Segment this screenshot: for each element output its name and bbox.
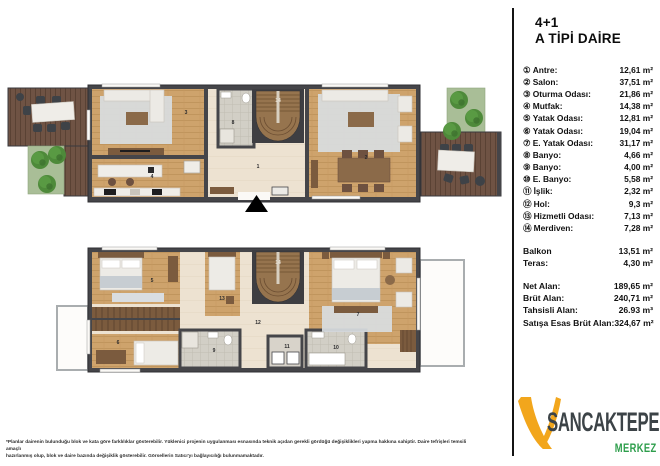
- legend-row: ⑩E. Banyo:5,58 m²: [523, 173, 653, 185]
- legend-number: ④: [523, 100, 531, 112]
- disclaimer-line2: hazırlanmış olup, blok ve daire bazında …: [6, 453, 468, 460]
- satis-alan-value: 324,67 m²: [614, 317, 653, 329]
- legend-value: 19,04 m²: [619, 125, 653, 137]
- room-label: 10: [333, 345, 339, 351]
- tree-icon: [31, 151, 49, 169]
- legend-number: ⑬: [523, 210, 532, 222]
- page-title: 4+1 A TİPİ DAİRE: [535, 15, 660, 47]
- legend-value: 31,17 m²: [619, 137, 653, 149]
- extras-block: Balkon 13,51 m² Teras: 4,30 m²: [523, 245, 653, 270]
- room-label: 8: [232, 120, 235, 126]
- disclaimer-footnote: *Planlar dairenin bulunduğu blok ve kata…: [6, 439, 468, 461]
- tahsisli-alan-label: Tahsisli Alan:: [523, 304, 578, 316]
- legend-label: E. Banyo:: [533, 173, 572, 185]
- brut-alan-row: Brüt Alan: 240,71 m²: [523, 292, 653, 304]
- teras-value: 4,30 m²: [623, 257, 653, 269]
- legend-label: Banyo:: [533, 149, 561, 161]
- logo-name: SANCAKTEPE: [547, 407, 659, 438]
- legend-value: 12,61 m²: [619, 64, 653, 76]
- legend-value: 4,00 m²: [624, 161, 653, 173]
- legend-value: 5,58 m²: [624, 173, 653, 185]
- apartment-name: A TİPİ DAİRE: [535, 31, 660, 47]
- room-label: 7: [357, 312, 360, 318]
- right-terrace-deck: [421, 88, 501, 196]
- tree-icon: [450, 91, 468, 109]
- legend-number: ②: [523, 76, 531, 88]
- tree-icon: [443, 122, 461, 140]
- legend-row: ②Salon:37,51 m²: [523, 76, 653, 88]
- legend-label: Mutfak:: [533, 100, 563, 112]
- legend-value: 9,3 m²: [629, 198, 653, 210]
- legend-label: Hol:: [534, 198, 550, 210]
- first-floor-plan: 5 6 13 14 7 12 9 11 10: [57, 247, 464, 372]
- legend-row: ⑪İşlik:2,32 m²: [523, 185, 653, 197]
- legend-value: 2,32 m²: [624, 185, 653, 197]
- room-label: 11: [284, 344, 290, 350]
- legend-label: E. Yatak Odası:: [533, 137, 593, 149]
- legend-row: ⑧Banyo:4,66 m²: [523, 149, 653, 161]
- legend-number: ⑭: [523, 222, 532, 234]
- legend-value: 7,13 m²: [624, 210, 653, 222]
- brand-logo: SANCAKTEPE MERKEZ: [516, 391, 658, 459]
- tahsisli-alan-value: 26.93 m³: [619, 304, 653, 316]
- balkon-value: 13,51 m²: [619, 245, 653, 257]
- legend-number: ⑪: [523, 185, 532, 197]
- legend-label: Antre:: [533, 64, 558, 76]
- legend-list: ①Antre:12,61 m²②Salon:37,51 m²③Oturma Od…: [523, 64, 653, 234]
- legend-number: ⑩: [523, 173, 531, 185]
- balcony-left: [57, 306, 88, 370]
- legend-number: ⑧: [523, 149, 531, 161]
- left-terrace-deck: [8, 88, 92, 196]
- legend-label: Oturma Odası:: [533, 88, 591, 100]
- room-label: 14: [275, 98, 281, 104]
- staircase: [252, 250, 304, 304]
- room-label: 9: [213, 348, 216, 354]
- brochure-page: 3 4 1 2 8 14: [0, 0, 660, 466]
- satis-alan-label: Satışa Esas Brüt Alan:: [523, 317, 614, 329]
- room-label: 14: [275, 260, 281, 266]
- legend-number: ⑦: [523, 137, 531, 149]
- room-label: 2: [365, 155, 368, 161]
- legend-row: ⑬Hizmetli Odası:7,13 m²: [523, 210, 653, 222]
- legend-row: ⑨Banyo:4,00 m²: [523, 161, 653, 173]
- legend-value: 4,66 m²: [624, 149, 653, 161]
- room-label: 5: [151, 278, 154, 284]
- legend-value: 14,38 m²: [619, 100, 653, 112]
- legend-label: Merdiven:: [534, 222, 574, 234]
- room-label: 12: [255, 320, 261, 326]
- tree-icon: [465, 109, 483, 127]
- legend-label: İşlik:: [534, 185, 553, 197]
- legend-value: 21,86 m²: [619, 88, 653, 100]
- satis-alan-row: Satışa Esas Brüt Alan: 324,67 m²: [523, 317, 653, 329]
- room-label: 6: [117, 340, 120, 346]
- balcony-right: [420, 260, 464, 366]
- legend-number: ⑫: [523, 198, 532, 210]
- teras-label: Teras:: [523, 257, 548, 269]
- disclaimer-line1: *Planlar dairenin bulunduğu blok ve kata…: [6, 439, 468, 453]
- room-label: 3: [185, 110, 188, 116]
- legend-row: ⑤Yatak Odası:12,81 m²: [523, 112, 653, 124]
- legend-value: 12,81 m²: [619, 112, 653, 124]
- legend-number: ⑥: [523, 125, 531, 137]
- ground-floor-plan: 3 4 1 2 8 14: [8, 84, 501, 212]
- legend-row: ①Antre:12,61 m²: [523, 64, 653, 76]
- net-alan-value: 189,65 m²: [614, 280, 653, 292]
- legend-row: ④Mutfak:14,38 m²: [523, 100, 653, 112]
- balkon-label: Balkon: [523, 245, 552, 257]
- room-label: 4: [151, 174, 154, 180]
- brut-alan-label: Brüt Alan:: [523, 292, 564, 304]
- legend-label: Hizmetli Odası:: [534, 210, 595, 222]
- legend-row: ⑥Yatak Odası:19,04 m²: [523, 125, 653, 137]
- teras-row: Teras: 4,30 m²: [523, 257, 653, 269]
- net-alan-row: Net Alan: 189,65 m²: [523, 280, 653, 292]
- legend-value: 7,28 m²: [624, 222, 653, 234]
- legend-row: ⑫Hol:9,3 m²: [523, 198, 653, 210]
- legend-value: 37,51 m²: [619, 76, 653, 88]
- balkon-row: Balkon 13,51 m²: [523, 245, 653, 257]
- floor-plans: 3 4 1 2 8 14: [0, 0, 513, 466]
- legend-label: Yatak Odası:: [533, 112, 583, 124]
- legend-row: ③Oturma Odası:21,86 m²: [523, 88, 653, 100]
- tahsisli-alan-row: Tahsisli Alan: 26.93 m³: [523, 304, 653, 316]
- legend-row: ⑭Merdiven:7,28 m²: [523, 222, 653, 234]
- logo-subtitle: MERKEZ: [615, 441, 657, 455]
- legend-label: Banyo:: [533, 161, 561, 173]
- legend-label: Salon:: [533, 76, 559, 88]
- tree-icon: [38, 175, 56, 193]
- tree-icon: [48, 146, 66, 164]
- apartment-type: 4+1: [535, 15, 660, 31]
- totals-block: Net Alan: 189,65 m² Brüt Alan: 240,71 m²…: [523, 280, 653, 329]
- room-label: 13: [219, 296, 225, 302]
- legend-row: ⑦E. Yatak Odası:31,17 m²: [523, 137, 653, 149]
- legend-number: ⑤: [523, 112, 531, 124]
- brut-alan-value: 240,71 m²: [614, 292, 653, 304]
- legend-number: ①: [523, 64, 531, 76]
- legend-label: Yatak Odası:: [533, 125, 583, 137]
- net-alan-label: Net Alan:: [523, 280, 560, 292]
- legend-number: ③: [523, 88, 531, 100]
- legend-number: ⑨: [523, 161, 531, 173]
- room-label: 1: [257, 164, 260, 170]
